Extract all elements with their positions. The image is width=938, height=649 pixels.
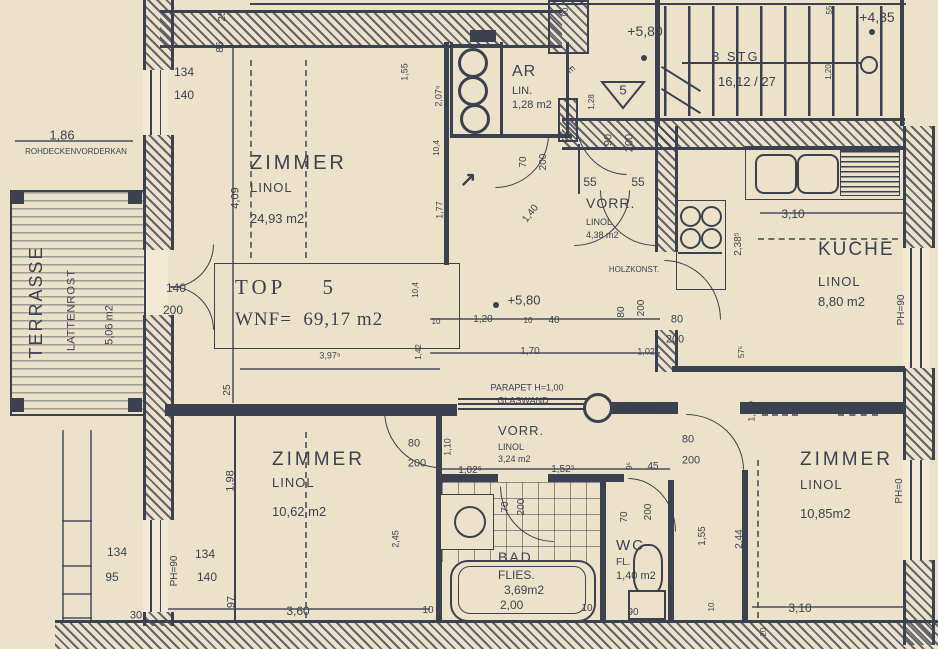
- vent-block: [470, 30, 496, 42]
- dim-line: [90, 430, 92, 620]
- dimension-label: 200: [637, 300, 647, 317]
- terrace-post: [128, 190, 142, 204]
- shaft-circle: [458, 48, 488, 78]
- room-name: WC: [616, 538, 656, 553]
- wall-line-mid-b: [608, 402, 678, 414]
- dimension-label: HOLZKONST.: [609, 266, 659, 274]
- dim-line: [168, 608, 430, 610]
- dimension-label: 2,07⁵: [435, 85, 444, 106]
- door-arc: [170, 286, 214, 330]
- dim-line: [760, 212, 905, 214]
- terrace-name: TERRASSE: [27, 245, 45, 358]
- dimension-label: 1,55: [698, 526, 708, 545]
- dimension-label: 1,28: [588, 94, 596, 110]
- room-area: 4,38 m2: [586, 231, 635, 240]
- room-floor: LINOL: [498, 443, 544, 452]
- dashed-line: [838, 414, 878, 416]
- door-arc: [495, 134, 549, 188]
- dim-line: [62, 520, 92, 522]
- stair-handrail-end: [860, 56, 878, 74]
- dimension-label: 45: [647, 462, 658, 472]
- dim-line: [232, 48, 234, 403]
- wall-line-kitchen-south: [672, 366, 905, 372]
- room-area: 3,24 m2: [498, 455, 544, 464]
- dimension-label: 80: [617, 306, 627, 317]
- sink-bowl: [755, 154, 797, 194]
- dimension-label: 2,38⁵: [734, 232, 744, 256]
- dim-line: [240, 368, 440, 370]
- wall-left-e: [143, 612, 174, 626]
- wall-line-bad-wc: [600, 480, 606, 622]
- terrace-door-opening: [143, 250, 168, 315]
- dimension-label: 55: [583, 176, 596, 188]
- dimension-label: 1,10: [444, 438, 453, 456]
- dimension-label: 2,45: [392, 530, 401, 548]
- wall-line-top-edge: [250, 3, 906, 5]
- dashed-line: [757, 460, 759, 618]
- dimension-label: 3,97⁵: [319, 352, 340, 361]
- wall-bottom: [55, 620, 938, 649]
- dashed-line: [762, 414, 798, 416]
- room-name: ZIMMER: [800, 450, 893, 469]
- dimension-label: 134: [195, 548, 215, 560]
- column: [583, 393, 613, 423]
- dimension-label: 95: [105, 571, 118, 583]
- room-floor: LINOL: [818, 275, 895, 288]
- dimension-label: 1,40: [521, 203, 541, 224]
- dimension-label: PARAPET H=1,00: [491, 384, 564, 393]
- window-left-lower: [143, 520, 168, 612]
- room-label-vorr-lower: VORR. LINOL 3,24 m2: [498, 424, 544, 464]
- dimension-label: 134: [174, 66, 194, 78]
- sink-bowl: [797, 154, 839, 194]
- unit-info-box: TOP 5 WNF= 69,17 m2: [214, 263, 460, 349]
- wall-line-wc-east: [668, 480, 674, 622]
- room-label-kueche: KUCHE LINOL 8,80 m2: [818, 240, 895, 308]
- room-name: VORR.: [586, 196, 635, 210]
- room-area: 24,93 m2: [250, 212, 347, 225]
- wall-left-d: [143, 410, 174, 520]
- glass-wall: [458, 403, 588, 405]
- room-floor: LINOL: [250, 181, 347, 194]
- shaft-circle: [460, 104, 490, 134]
- dim-line: [62, 565, 92, 567]
- room-area: 10,85m2: [800, 507, 893, 520]
- dimension-label: 3,10: [788, 602, 811, 614]
- washbasin-bowl: [454, 506, 486, 538]
- shaft-circle: [458, 76, 488, 106]
- floor-plan: ZIMMER LINOL 24,93 m2 ZIMMER LINOL 10,62…: [0, 0, 938, 649]
- dimension-label: 55: [631, 176, 644, 188]
- dimension-label: 57⁵: [738, 346, 746, 358]
- wall-kitchen-west-a: [655, 126, 678, 252]
- unit-number: TOP 5: [235, 275, 337, 300]
- wall-line-mid-c: [740, 402, 905, 414]
- dim-line: [15, 140, 133, 142]
- stair-count: 8 STG: [712, 50, 776, 63]
- dim-line: [430, 352, 660, 354]
- room-name: BAD: [498, 550, 544, 564]
- dimension-label: 3,10: [781, 208, 804, 220]
- wall-line-room1-east: [444, 42, 449, 265]
- dim-line: [752, 606, 904, 608]
- room-area: 10,62 m2: [272, 505, 365, 518]
- stair-label: 8 STG 16,12 / 27: [712, 50, 776, 88]
- wall-line-vorr-west: [578, 144, 580, 194]
- room-name: VORR.: [498, 424, 544, 437]
- room-area: 8,80 m2: [818, 295, 895, 308]
- stove-burner: [701, 228, 722, 249]
- glass-wall: [458, 408, 588, 410]
- room-name: ZIMMER: [272, 450, 365, 469]
- stove-burner: [701, 206, 722, 227]
- room-area: 1,28 m2: [512, 100, 552, 111]
- terrace-area: 5,06 m2: [105, 305, 116, 345]
- stove-burner: [680, 228, 701, 249]
- terrace-post: [128, 398, 142, 412]
- dim-line: [62, 617, 92, 619]
- level-dot: [641, 55, 647, 61]
- dimension-label: 10: [708, 603, 716, 612]
- level-dot: [869, 29, 875, 35]
- window-left-upper: [143, 70, 168, 135]
- room-floor: LIN.: [512, 86, 552, 97]
- stove-divider: [678, 252, 722, 254]
- wall-line-ar-east: [566, 42, 569, 138]
- room-label-bad: BAD FLIES. 3,69m2 2,00: [498, 550, 544, 611]
- stove-burner: [680, 206, 701, 227]
- dimension-label: 1,20: [473, 315, 492, 325]
- wall-right-b: [903, 368, 935, 460]
- dimension-label: PH=90: [170, 556, 180, 587]
- room-label-zimmer-sw: ZIMMER LINOL 10,62 m2: [272, 450, 365, 518]
- dimension-label: 10,4: [433, 140, 441, 156]
- room-area: 3,69m2: [504, 584, 544, 596]
- terrace-post: [10, 190, 24, 204]
- wall-line-bad-north-b: [548, 474, 624, 482]
- wall-left-b: [143, 135, 174, 250]
- toilet-tank: [628, 590, 666, 620]
- window-kitchen-east: [903, 248, 929, 368]
- wall-right-a: [903, 126, 935, 248]
- dimension-label: 1,55: [401, 63, 410, 81]
- level-dot: [493, 302, 499, 308]
- room-floor: LINOL: [586, 218, 635, 227]
- room-floor: LINOL: [272, 476, 365, 489]
- room-floor: FL.: [616, 558, 656, 568]
- dimension-label: ROHDECKENVORDERKAN: [25, 148, 127, 156]
- terrace-post: [10, 398, 24, 412]
- room-label-wc: WC FL. 1,40 m2: [616, 538, 656, 582]
- glass-wall: [458, 398, 588, 400]
- dimension-label: 140: [174, 89, 194, 101]
- dimension-label: +5,80: [508, 294, 541, 307]
- room-floor: LINOL: [800, 478, 893, 491]
- dim-line: [62, 593, 92, 595]
- dim-line: [440, 468, 670, 470]
- window-zimmer-se-east: [903, 460, 929, 560]
- wall-line-bad-north-a: [436, 474, 498, 482]
- sink-drainer: [840, 150, 900, 196]
- unit-living-area: WNF= 69,17 m2: [235, 309, 383, 331]
- room-name: AR: [512, 64, 552, 80]
- dim-line: [430, 318, 660, 320]
- room-extra: 2,00: [500, 599, 544, 611]
- dimension-label: 134: [107, 546, 127, 558]
- room-floor: FLIES.: [498, 569, 544, 581]
- wall-left-a: [143, 0, 174, 70]
- entry-arrow-icon: ↗: [460, 170, 477, 190]
- dim-line: [62, 430, 64, 620]
- door-arc: [686, 414, 744, 470]
- door-arc: [384, 410, 440, 468]
- room-name: KUCHE: [818, 240, 895, 259]
- room-label-zimmer-nw: ZIMMER LINOL 24,93 m2: [250, 153, 347, 225]
- room-label-zimmer-se: ZIMMER LINOL 10,85m2: [800, 450, 893, 520]
- dimension-label: 140: [197, 571, 217, 583]
- door-arc: [575, 118, 627, 175]
- stair-dimensions: 16,12 / 27: [718, 75, 776, 88]
- room-label-ar: AR LIN. 1,28 m2: [512, 64, 552, 111]
- entrance-marker-number: 5: [619, 84, 626, 97]
- terrace-floor: LATTENROST: [67, 269, 78, 351]
- wall-line-zimmer-se-west: [742, 470, 748, 622]
- room-area: 1,40 m2: [616, 571, 656, 582]
- door-arc: [170, 244, 214, 288]
- wall-line-niche: [234, 416, 236, 622]
- wall-line-stair-west: [655, 0, 660, 126]
- room-label-vorr-upper: VORR. LINOL 4,38 m2: [586, 196, 635, 240]
- room-name: ZIMMER: [250, 153, 347, 173]
